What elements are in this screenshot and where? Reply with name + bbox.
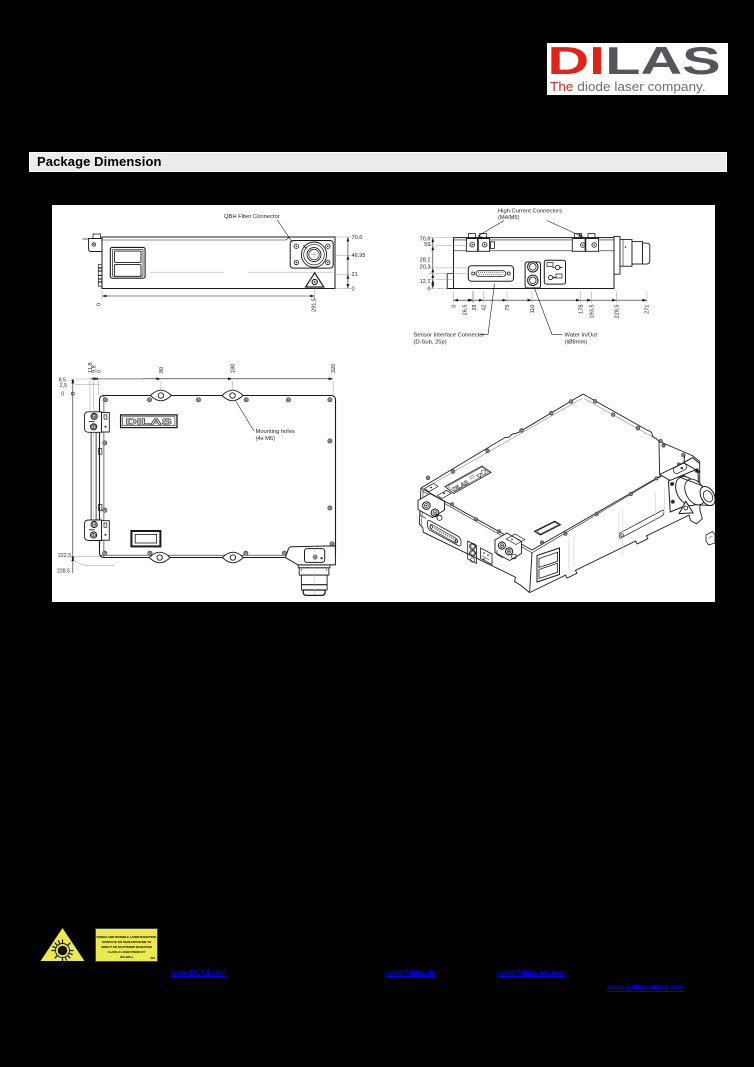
svg-text:12,1: 12,1 bbox=[420, 279, 431, 285]
svg-text:28,1: 28,1 bbox=[420, 258, 431, 264]
svg-text:291,5: 291,5 bbox=[312, 298, 318, 312]
svg-text:46,95: 46,95 bbox=[352, 253, 366, 259]
svg-text:110: 110 bbox=[530, 305, 536, 314]
svg-text:178: 178 bbox=[578, 305, 584, 314]
svg-text:75: 75 bbox=[505, 305, 511, 311]
svg-text:0: 0 bbox=[451, 305, 457, 308]
svg-text:0: 0 bbox=[97, 370, 103, 373]
svg-text:Sensor Interface Connector: Sensor Interface Connector bbox=[414, 333, 485, 339]
svg-text:Water In/Out: Water In/Out bbox=[565, 333, 598, 339]
svg-text:20,3: 20,3 bbox=[420, 264, 431, 270]
svg-text:(IØ8mm): (IØ8mm) bbox=[565, 340, 588, 346]
svg-text:0: 0 bbox=[97, 303, 103, 306]
svg-text:26,5: 26,5 bbox=[463, 305, 469, 316]
svg-text:228,5: 228,5 bbox=[614, 305, 620, 319]
svg-text:42: 42 bbox=[481, 305, 487, 311]
svg-text:80: 80 bbox=[159, 367, 165, 373]
svg-text:70,6: 70,6 bbox=[352, 235, 363, 241]
svg-text:0: 0 bbox=[352, 287, 355, 293]
svg-text:59: 59 bbox=[424, 242, 430, 248]
svg-text:0: 0 bbox=[427, 287, 430, 293]
svg-text:DILAS: DILAS bbox=[548, 43, 721, 83]
svg-text:222,5: 222,5 bbox=[58, 553, 71, 559]
svg-text:DILAS: DILAS bbox=[126, 416, 172, 426]
svg-text:271: 271 bbox=[645, 305, 651, 314]
svg-text:(M4/M5): (M4/M5) bbox=[498, 215, 520, 221]
svg-text:Mounting holes: Mounting holes bbox=[256, 429, 295, 435]
svg-text:21: 21 bbox=[352, 272, 358, 278]
svg-text:0: 0 bbox=[61, 392, 64, 398]
svg-text:(4x M6): (4x M6) bbox=[256, 436, 276, 442]
svg-text:228,5: 228,5 bbox=[57, 569, 70, 575]
svg-text:The diode laser company.: The diode laser company. bbox=[550, 80, 706, 94]
svg-text:180: 180 bbox=[231, 364, 237, 373]
svg-text:28: 28 bbox=[472, 305, 478, 311]
svg-text:(D-Sub, 25p): (D-Sub, 25p) bbox=[414, 340, 447, 346]
svg-text:320: 320 bbox=[331, 364, 337, 373]
svg-text:193,5: 193,5 bbox=[589, 305, 595, 319]
svg-text:2,5: 2,5 bbox=[60, 383, 67, 389]
svg-text:QBH Fiber Connector: QBH Fiber Connector bbox=[224, 214, 280, 220]
svg-text:High Current Connectors: High Current Connectors bbox=[498, 209, 562, 215]
